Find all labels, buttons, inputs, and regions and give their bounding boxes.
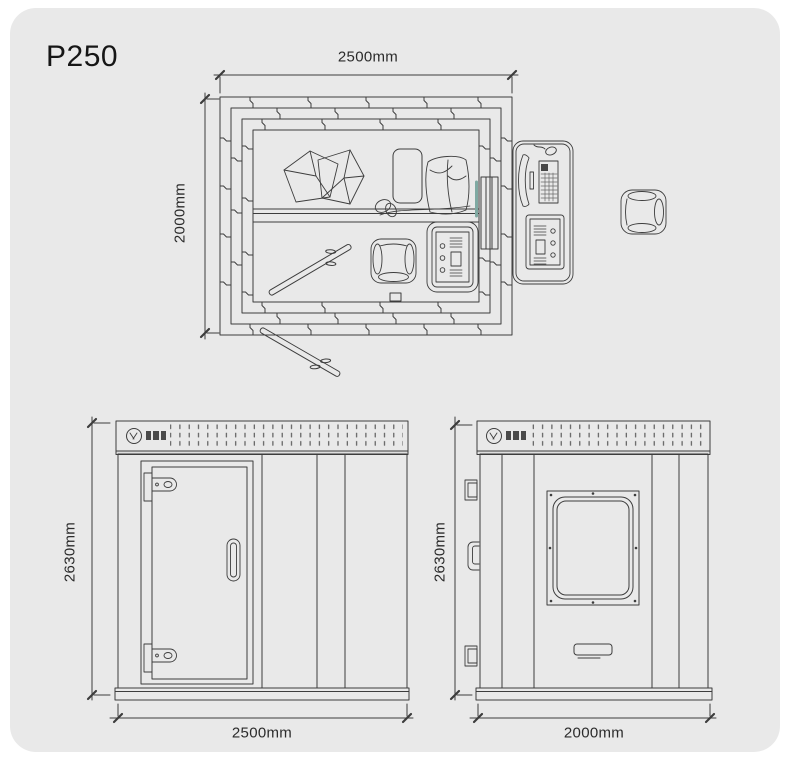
monitor [519,155,534,207]
side-top-band [477,421,710,455]
inner-door-leaf [265,238,356,302]
plan-bed [253,149,479,222]
side-window [547,491,639,605]
outer-door-leaf [256,321,344,383]
side-body [480,454,708,688]
plan-chair-inside [371,239,416,283]
plan-intercom-inside [427,222,478,292]
door-handle [227,539,240,581]
front-door [141,461,253,684]
side-elevation [451,417,716,722]
front-dim-width [110,704,413,722]
plan-view [201,71,666,383]
mouse [534,145,557,156]
door-hinge-bottom [144,644,177,672]
plan-dim-depth [201,93,219,339]
side-door-handle [468,542,479,570]
side-dim-height [451,417,472,700]
pillow-left [284,151,338,202]
brand-logo [127,429,167,444]
front-elevation [88,417,413,722]
technical-drawing [0,0,790,760]
door-hinge-top [144,473,177,501]
plan-operator-desk [513,141,573,284]
pillow-middle [318,150,364,204]
keyboard [539,161,558,203]
side-dim-width [470,704,716,722]
side-vent-slot [574,644,612,658]
side-hinge-top [465,480,477,500]
front-body [118,454,407,688]
brand-logo [487,429,527,444]
front-dim-height [88,417,110,700]
front-base [115,688,409,700]
plan-dim-width [214,71,518,93]
bedside-pad [393,149,422,203]
plan-window [477,177,499,249]
side-hinge-bottom [465,646,477,666]
pillow-right [426,156,469,214]
plan-walls [220,97,512,335]
plan-chair-outside [621,190,666,234]
front-top-band [116,421,408,455]
side-base [476,688,712,700]
plan-intercom-outside [526,215,564,269]
plan-door-leaves [256,238,356,384]
